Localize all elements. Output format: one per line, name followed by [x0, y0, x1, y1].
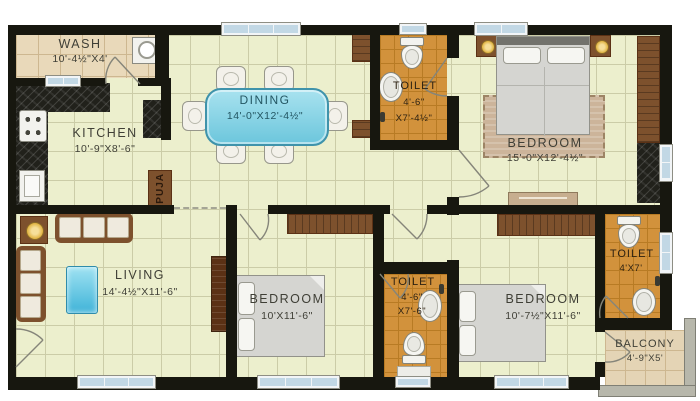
wall [155, 35, 169, 78]
window [46, 76, 80, 86]
kitchen-label: KITCHEN [72, 126, 137, 140]
toilet-top-dims2: X7'-4½" [396, 113, 433, 124]
window [222, 23, 300, 35]
sofa-cushion [59, 217, 81, 238]
wall [595, 362, 605, 377]
wardrobe [497, 214, 597, 236]
toilet-right-label: TOILET [610, 248, 654, 260]
sofa-cushion [20, 250, 41, 271]
toilet-right-dims: 4'X7' [619, 263, 642, 274]
pillow [547, 47, 585, 64]
wc-icon [615, 216, 643, 248]
wall [268, 205, 390, 214]
pillow [503, 47, 541, 64]
wall [161, 78, 171, 140]
stove-icon [19, 110, 47, 142]
wall [447, 96, 459, 150]
bedroom-right-dims: 10'-7½"X11'-6" [505, 310, 580, 322]
wall [427, 205, 672, 214]
puja-cabinet: PUJA [148, 170, 172, 207]
door-arc [420, 58, 448, 98]
window [258, 376, 339, 388]
wc-icon [400, 332, 428, 364]
balcony-frame [598, 385, 696, 397]
window [660, 233, 672, 273]
sofa-cushion [20, 296, 41, 318]
center-table [66, 266, 98, 314]
wall [78, 78, 106, 86]
sink-basin [24, 175, 40, 197]
granite-ledge [637, 143, 660, 203]
wardrobe [637, 36, 660, 143]
sheet-crease [497, 85, 589, 86]
dining-label: DINING [240, 93, 291, 107]
window [400, 24, 426, 34]
wall [8, 25, 672, 35]
toilet-top-dims1: 4'-6" [403, 97, 424, 108]
wall [447, 260, 459, 377]
wash-label: WASH [58, 37, 101, 51]
balcony-dims: 4'-9"X5' [627, 353, 663, 364]
sofa-cushion [20, 273, 41, 294]
sofa [55, 213, 133, 243]
bedroom-middle-dims: 10'X11'-6" [261, 310, 313, 322]
toilet-mat [397, 366, 431, 377]
sofa-cushion [83, 217, 105, 238]
basin-icon [632, 288, 656, 316]
toilet-bottom-dims1: 4'-6" [401, 292, 422, 303]
door-arc [392, 214, 428, 250]
wall [226, 205, 237, 377]
wall [447, 197, 459, 215]
sofa [16, 246, 46, 322]
toilet-top-label: TOILET [393, 80, 437, 92]
door-arc [600, 292, 630, 320]
bedroom-master-dims: 15'-0"X12'-4½" [507, 152, 583, 164]
sheet-crease [544, 67, 545, 136]
open-passage [174, 207, 226, 209]
tap-icon [380, 112, 385, 122]
bed [496, 36, 590, 135]
door-arc [16, 327, 58, 369]
dining-dims: 14'-0"X12'-4½" [227, 110, 303, 122]
lamp-icon [26, 222, 44, 240]
tap-icon [439, 284, 444, 294]
window [396, 377, 430, 387]
window [660, 145, 672, 181]
window [78, 376, 155, 388]
window [475, 23, 527, 35]
pillow [459, 291, 476, 322]
lamp-icon [481, 40, 495, 54]
pillow [459, 325, 476, 356]
sofa-cushion [107, 217, 129, 238]
bedroom-master-label: BEDROOM [507, 136, 582, 150]
wall [8, 205, 174, 214]
wall [370, 140, 447, 150]
door-arc [104, 48, 142, 86]
bedroom-middle-label: BEDROOM [249, 292, 324, 306]
door-arc [240, 214, 270, 244]
wardrobe [287, 214, 373, 234]
door-arc [459, 150, 495, 198]
balcony-label: BALCONY [615, 338, 675, 350]
wall [16, 78, 48, 86]
window [495, 376, 568, 388]
wash-dims: 10'-4½"X4' [52, 53, 107, 65]
living-dims: 14'-4½"X11'-6" [102, 286, 177, 298]
kitchen-dims: 10'-9"X8'-6" [75, 143, 136, 155]
bedroom-right-label: BEDROOM [505, 292, 580, 306]
wall [447, 35, 459, 58]
blanket-fold [310, 276, 324, 290]
pillow [238, 318, 255, 351]
bed-headboard [497, 37, 589, 45]
toilet-bottom-dims2: X7'-6" [398, 306, 426, 317]
kitchen-sink-icon [19, 170, 45, 202]
toilet-bottom-label: TOILET [391, 276, 435, 288]
floor-plan: PUJA DINING 14'-0"X12'-4½" BEDROOM 15'-0… [0, 0, 700, 401]
lamp-icon [595, 40, 609, 54]
wall [370, 25, 380, 150]
wall [378, 262, 447, 274]
dresser [508, 192, 578, 206]
kitchen-counter [16, 83, 110, 112]
living-label: LIVING [115, 268, 165, 282]
puja-label: PUJA [155, 173, 166, 204]
